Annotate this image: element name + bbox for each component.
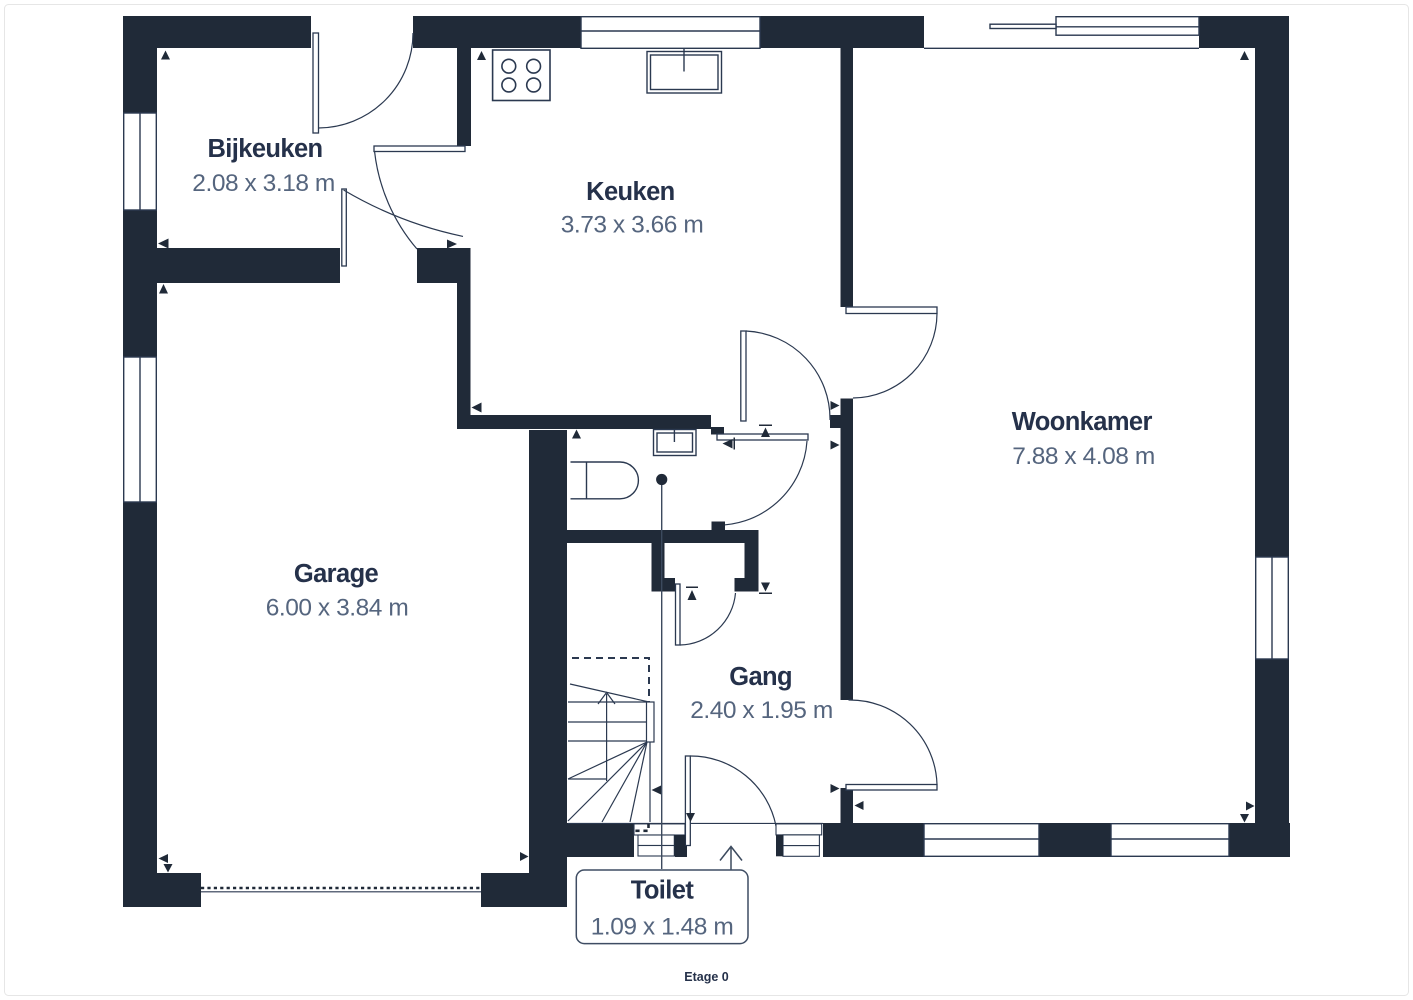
svg-text:Etage 0: Etage 0	[684, 970, 729, 984]
svg-text:2.08 x 3.18 m: 2.08 x 3.18 m	[192, 170, 335, 197]
svg-text:7.88 x 4.08 m: 7.88 x 4.08 m	[1012, 443, 1155, 470]
svg-text:Keuken: Keuken	[586, 178, 675, 206]
svg-text:1.09 x 1.48 m: 1.09 x 1.48 m	[591, 913, 734, 940]
svg-text:Toilet: Toilet	[631, 877, 695, 905]
svg-text:6.00 x 3.84 m: 6.00 x 3.84 m	[266, 595, 409, 622]
svg-text:Bijkeuken: Bijkeuken	[207, 135, 322, 163]
svg-text:Woonkamer: Woonkamer	[1012, 408, 1153, 436]
svg-text:Garage: Garage	[294, 560, 379, 588]
svg-text:3.73 x 3.66 m: 3.73 x 3.66 m	[561, 212, 704, 239]
svg-text:Gang: Gang	[729, 663, 792, 691]
svg-text:2.40 x 1.95 m: 2.40 x 1.95 m	[690, 697, 833, 724]
